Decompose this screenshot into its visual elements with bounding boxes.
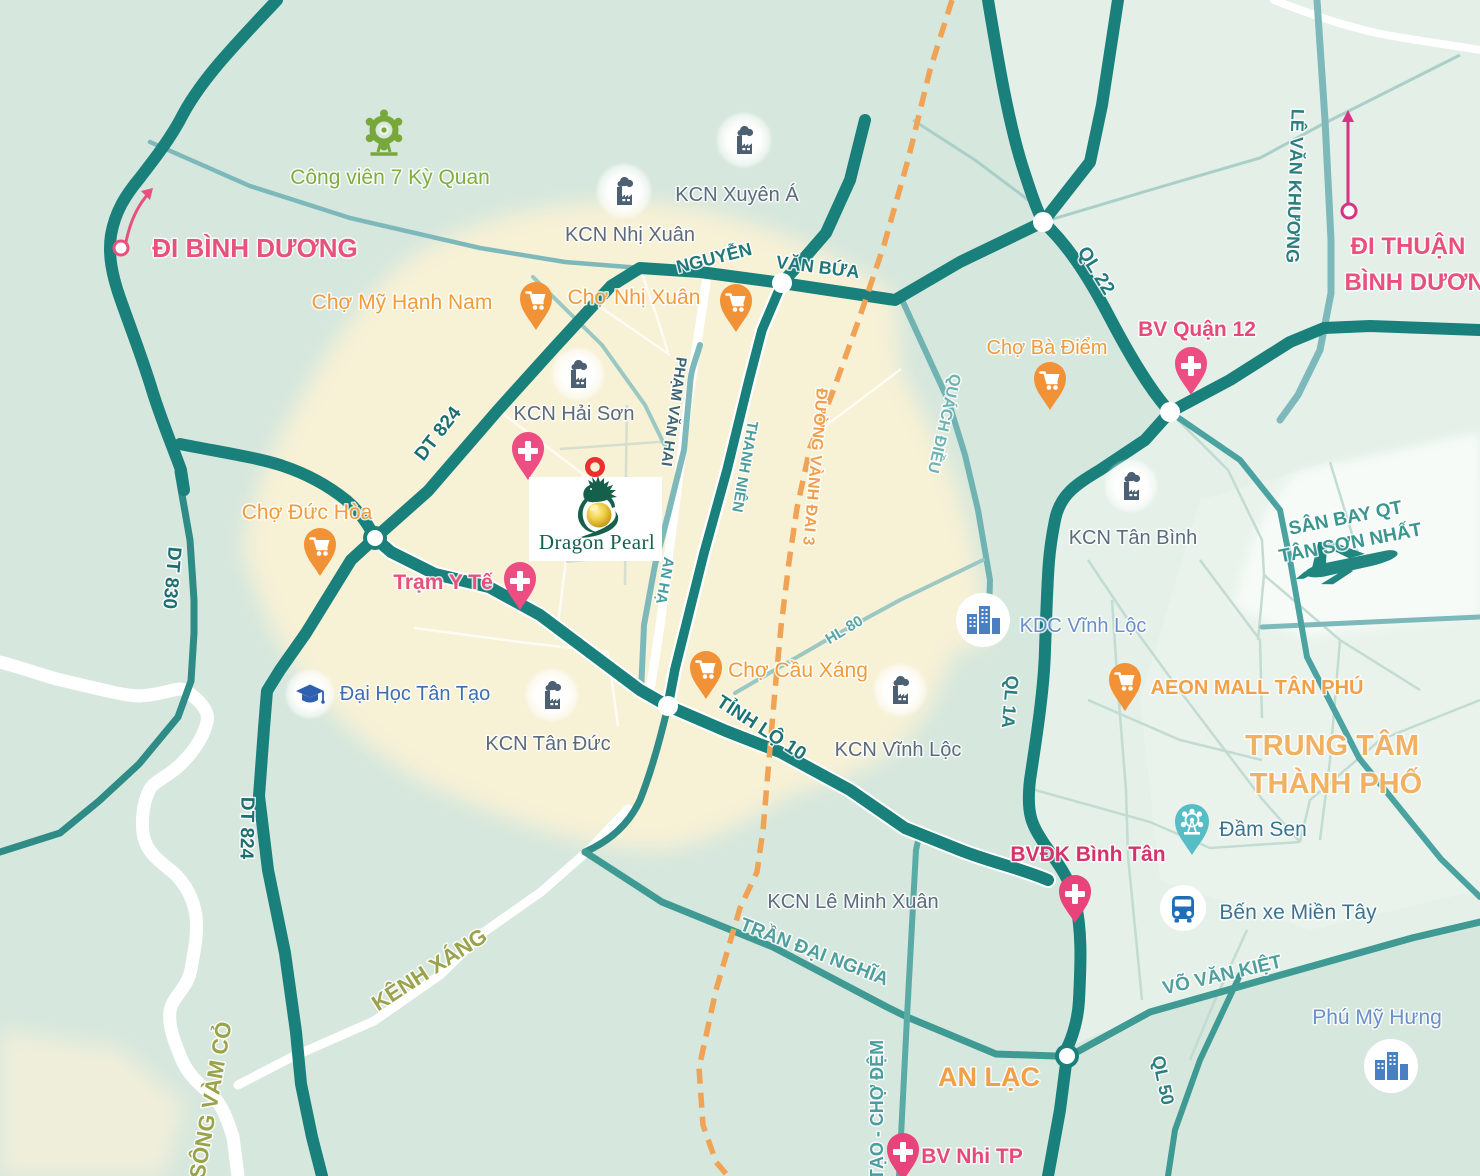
- svg-text:DT 824: DT 824: [235, 797, 257, 860]
- svg-text:TRUNG TÂM: TRUNG TÂM: [1245, 728, 1419, 762]
- svg-text:TÂN TẠO - CHỢ ĐỆM: TÂN TẠO - CHỢ ĐỆM: [866, 1040, 887, 1176]
- svg-text:BV Nhi TP: BV Nhi TP: [921, 1145, 1023, 1168]
- svg-text:KCN Nhị Xuân: KCN Nhị Xuân: [565, 224, 695, 246]
- svg-text:BÌNH DƯƠNG: BÌNH DƯƠNG: [1344, 268, 1480, 296]
- svg-text:ĐI THUẬN: ĐI THUẬN: [1351, 232, 1466, 260]
- svg-text:Phú Mỹ Hưng: Phú Mỹ Hưng: [1312, 1006, 1442, 1029]
- svg-text:Chợ Cầu Xáng: Chợ Cầu Xáng: [728, 659, 868, 682]
- svg-text:BV Quận 12: BV Quận 12: [1138, 318, 1256, 341]
- svg-text:Bến xe Miền Tây: Bến xe Miền Tây: [1219, 901, 1377, 924]
- svg-text:Dragon Pearl: Dragon Pearl: [539, 530, 655, 554]
- svg-text:KCN Hải Sơn: KCN Hải Sơn: [514, 403, 635, 425]
- svg-text:KCN Tân Bình: KCN Tân Bình: [1069, 527, 1198, 549]
- svg-text:Trạm Y Tế: Trạm Y Tế: [393, 571, 493, 594]
- svg-text:Công viên 7 Kỳ Quan: Công viên 7 Kỳ Quan: [290, 166, 490, 189]
- svg-text:Đại Học Tân Tạo: Đại Học Tân Tạo: [340, 683, 490, 705]
- svg-text:Chợ Mỹ Hạnh Nam: Chợ Mỹ Hạnh Nam: [312, 291, 493, 314]
- svg-text:Chợ Nhị Xuân: Chợ Nhị Xuân: [568, 286, 701, 309]
- svg-text:KDC Vĩnh Lộc: KDC Vĩnh Lộc: [1020, 615, 1147, 637]
- svg-text:KCN Lê Minh Xuân: KCN Lê Minh Xuân: [767, 891, 938, 913]
- svg-text:KCN Xuyên Á: KCN Xuyên Á: [675, 183, 799, 206]
- svg-text:BVĐK Bình Tân: BVĐK Bình Tân: [1010, 843, 1165, 866]
- svg-text:Chợ Bà Điểm: Chợ Bà Điểm: [987, 337, 1108, 359]
- svg-text:KCN Tân Đức: KCN Tân Đức: [485, 733, 610, 755]
- svg-text:ĐI BÌNH DƯƠNG: ĐI BÌNH DƯƠNG: [152, 233, 358, 263]
- svg-text:Chợ Đức Hòa: Chợ Đức Hòa: [242, 501, 373, 524]
- svg-text:Đầm Sen: Đầm Sen: [1219, 818, 1307, 841]
- svg-text:AN LẠC: AN LẠC: [938, 1062, 1040, 1092]
- svg-text:AEON MALL TÂN PHÚ: AEON MALL TÂN PHÚ: [1151, 675, 1364, 699]
- svg-text:KCN Vĩnh Lộc: KCN Vĩnh Lộc: [835, 739, 962, 761]
- svg-text:THÀNH PHỐ: THÀNH PHỐ: [1250, 766, 1422, 800]
